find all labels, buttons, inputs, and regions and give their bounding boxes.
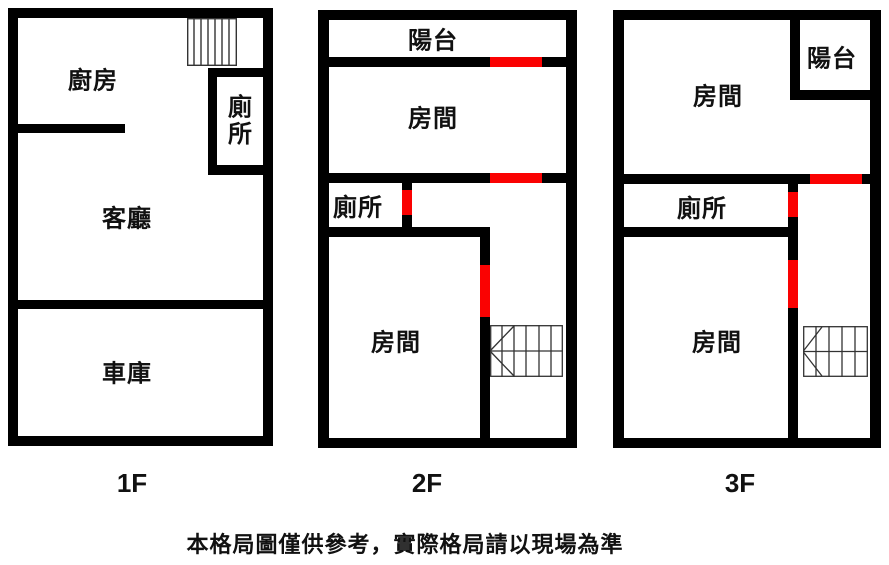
room-label-balcony: 陽台 (408, 21, 458, 56)
room-label-living-room: 客廳 (102, 199, 152, 234)
room-label-room-bottom: 房間 (692, 323, 742, 358)
toilet-wall-bottom (613, 227, 798, 237)
room-label-toilet: 廁所 (226, 94, 254, 148)
balcony-wall-left (790, 10, 800, 100)
room-label-toilet: 廁所 (677, 189, 727, 224)
door-marker (480, 265, 490, 317)
room-label-balcony: 陽台 (807, 39, 857, 74)
outer-wall-top (613, 10, 881, 20)
toilet-wall-left (208, 68, 217, 175)
stairs-icon (803, 326, 868, 377)
partition-wall-kitchen (8, 124, 125, 133)
hall-wall-vertical (788, 183, 798, 438)
outer-wall-right (263, 8, 273, 446)
balcony-wall-bottom (790, 90, 881, 100)
toilet-wall-bottom (208, 165, 263, 175)
door-marker (490, 173, 542, 183)
floorplan-3f: 房間 陽台 廁所 房間 (613, 10, 881, 448)
outer-wall-bottom (613, 438, 881, 448)
floorplan-1f: 廚房 廁所 客廳 車庫 (8, 8, 273, 446)
door-marker (788, 260, 798, 308)
room-label-room-bottom: 房間 (371, 323, 421, 358)
room-bottom-wall-right (480, 227, 490, 448)
floor-label-2f: 2F (412, 468, 442, 499)
outer-wall-top (318, 10, 577, 20)
room-label-room-top: 房間 (693, 77, 743, 112)
door-marker (810, 174, 862, 184)
outer-wall-right (870, 10, 881, 448)
room-label-kitchen: 廚房 (68, 61, 118, 96)
disclaimer-text: 本格局圖僅供參考，實際格局請以現場為準 (186, 527, 623, 559)
door-marker (788, 192, 798, 217)
room-label-toilet: 廁所 (333, 188, 383, 223)
floorplan-2f: 陽台 房間 廁所 房間 (318, 10, 577, 448)
outer-wall-top (8, 8, 273, 18)
floor-label-1f: 1F (117, 468, 147, 499)
outer-wall-left (8, 8, 18, 446)
outer-wall-right (566, 10, 577, 448)
door-marker (402, 190, 412, 215)
floor-label-3f: 3F (725, 468, 755, 499)
stairs-icon (187, 18, 237, 66)
room-label-garage: 車庫 (102, 354, 152, 389)
outer-wall-bottom (8, 436, 273, 446)
outer-wall-bottom (318, 438, 577, 448)
room-label-room-top: 房間 (408, 99, 458, 134)
toilet-wall-bottom (318, 227, 490, 237)
partition-wall-garage (8, 300, 273, 309)
toilet-wall-top (208, 68, 263, 77)
stairs-icon (490, 325, 563, 377)
door-marker (490, 57, 542, 67)
